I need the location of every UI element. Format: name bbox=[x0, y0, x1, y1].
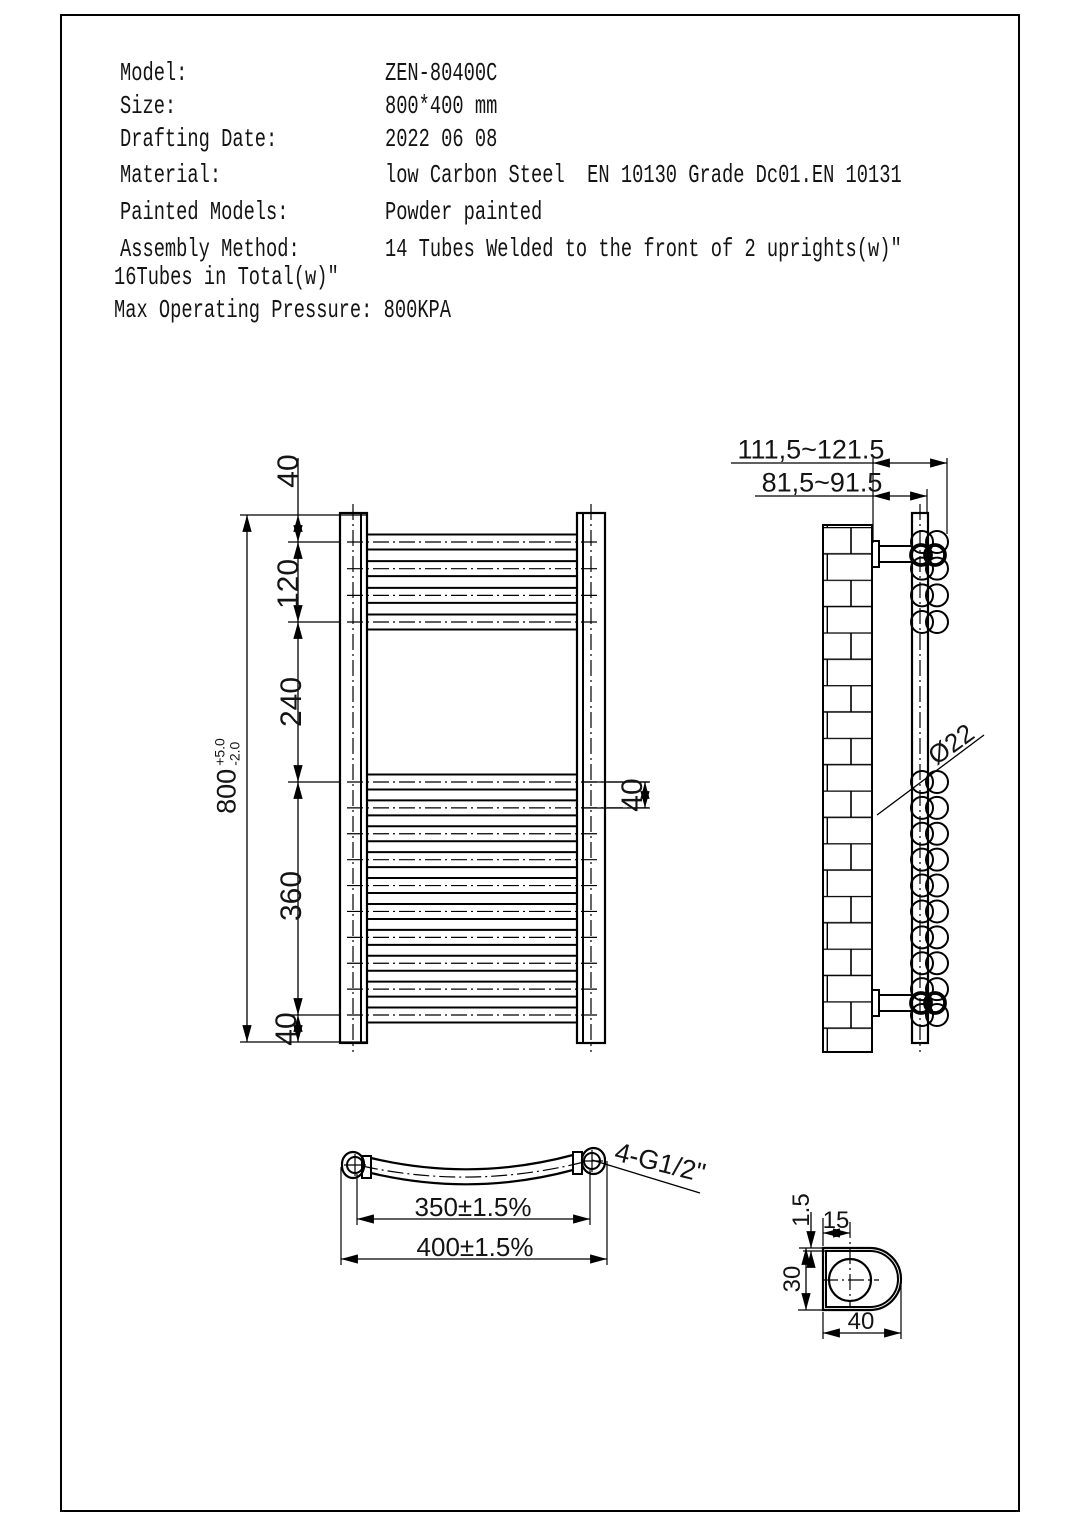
dim-top-group: 120 bbox=[274, 559, 304, 609]
tube-section-circle bbox=[926, 584, 948, 606]
tolerance-plus: +5.0 bbox=[212, 738, 227, 766]
top-bracket-flange bbox=[872, 541, 879, 567]
dim-hole-centers: 350±1.5% bbox=[415, 1194, 532, 1220]
dim-tube-offset: 15 bbox=[823, 1209, 850, 1233]
dim-wall-to-upright: 81,5~91.5 bbox=[762, 470, 883, 497]
tube-section-circle bbox=[926, 926, 948, 948]
tube-sections bbox=[911, 531, 948, 1026]
tube-section-circle bbox=[926, 771, 948, 793]
dim-overall-width: 400±1.5% bbox=[417, 1234, 534, 1260]
tube-section-circle bbox=[926, 875, 948, 897]
tube-section-circle bbox=[926, 797, 948, 819]
dim-tube-pitch: 40 bbox=[618, 778, 648, 811]
dim-wall-thickness: 1.5 bbox=[790, 1193, 814, 1226]
dim-bottom-group: 360 bbox=[277, 871, 307, 921]
tube-section-circle bbox=[926, 849, 948, 871]
curved-tube-top-edge bbox=[371, 1155, 573, 1169]
tube-section-circle bbox=[926, 823, 948, 845]
tube-section-circle bbox=[926, 952, 948, 974]
dim-wall-to-tube-front: 111,5~121.5 bbox=[738, 437, 885, 464]
tube-section-circle bbox=[926, 611, 948, 633]
dim-overall-height: 800+5.0-2.0 bbox=[212, 738, 241, 814]
overall-height-value: 800 bbox=[214, 769, 241, 814]
profile-outer bbox=[823, 1248, 901, 1310]
dim-profile-height: 30 bbox=[781, 1266, 805, 1293]
brick-wall bbox=[823, 525, 872, 1052]
front-view bbox=[240, 458, 650, 1052]
profile-inner bbox=[826, 1251, 898, 1307]
tolerance-minus: -2.0 bbox=[227, 738, 242, 766]
tube-section-circle bbox=[926, 900, 948, 922]
drawing-sheet: Model:ZEN-80400C Size:800*400 mm Draftin… bbox=[0, 0, 1080, 1527]
dim-profile-width: 40 bbox=[848, 1310, 875, 1334]
dim-bottom-offset: 40 bbox=[272, 1012, 302, 1045]
drawing-canvas bbox=[0, 0, 1080, 1527]
dim-middle-gap: 240 bbox=[277, 677, 307, 727]
dim-top-offset: 40 bbox=[274, 454, 304, 487]
bottom-bracket-flange bbox=[872, 990, 879, 1016]
